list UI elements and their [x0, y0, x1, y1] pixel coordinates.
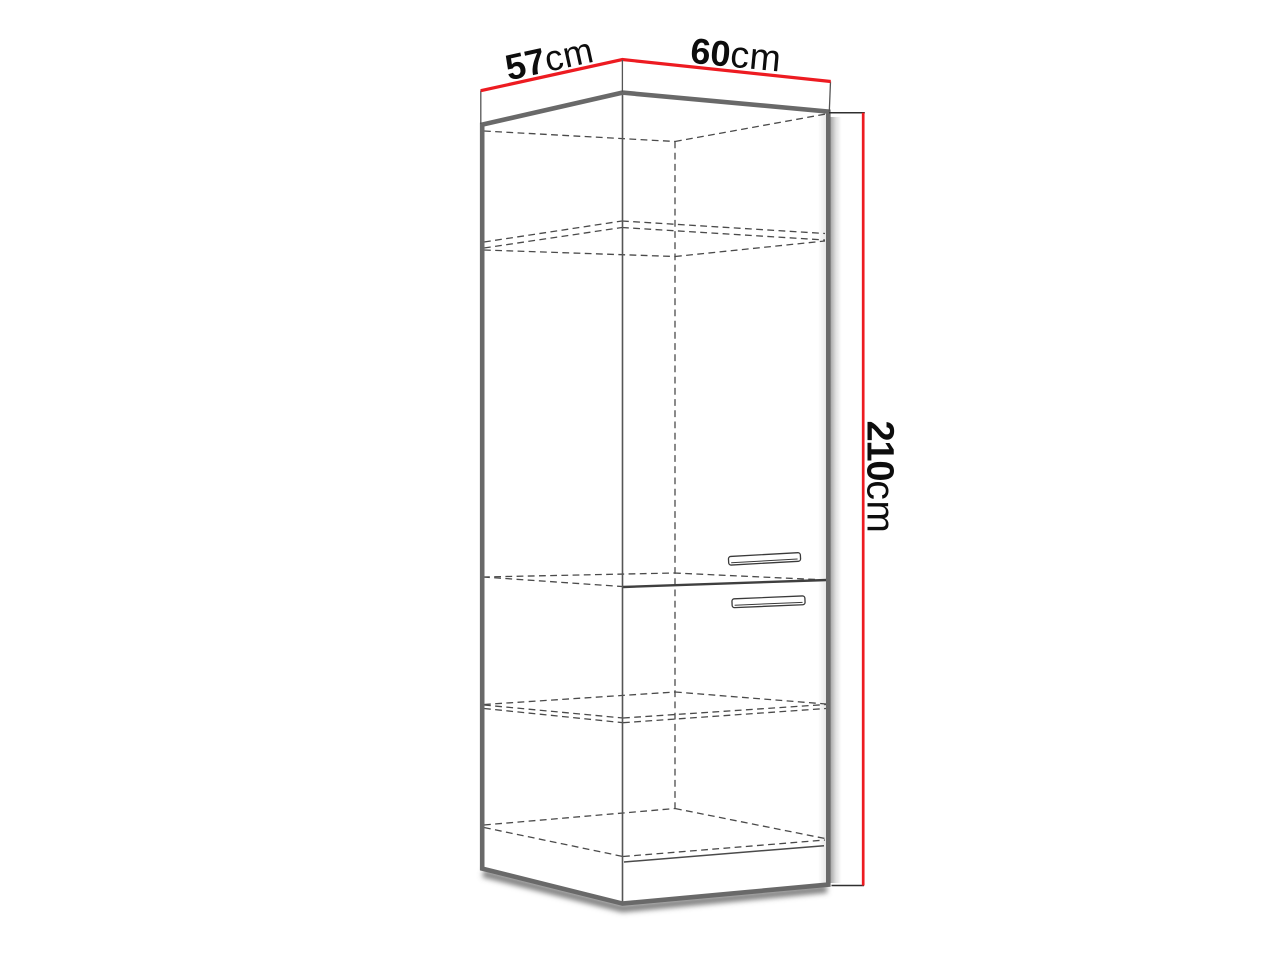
svg-text:210cm: 210cm: [859, 421, 902, 534]
svg-text:60cm: 60cm: [689, 29, 784, 80]
svg-text:57cm: 57cm: [501, 29, 597, 88]
